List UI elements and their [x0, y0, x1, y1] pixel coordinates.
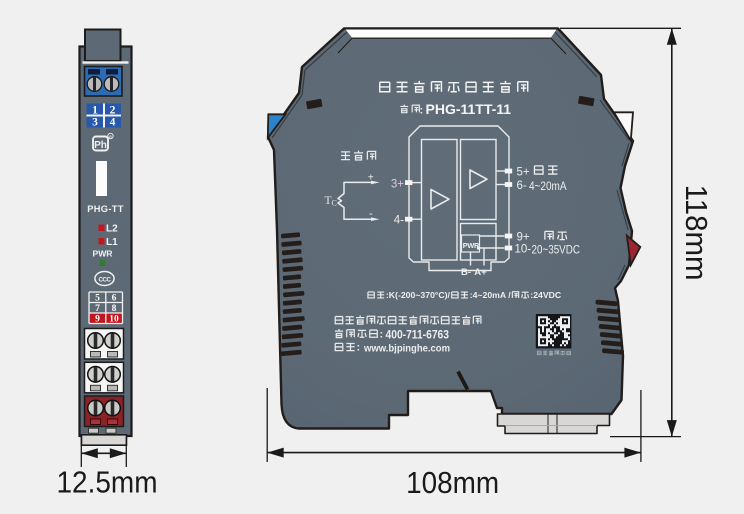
- svg-text:-: -: [369, 208, 373, 220]
- svg-text:9: 9: [95, 314, 100, 324]
- svg-text::: :: [357, 342, 361, 354]
- svg-text:2: 2: [110, 104, 116, 116]
- svg-text:PWR: PWR: [92, 249, 113, 259]
- svg-text:5: 5: [95, 293, 100, 303]
- svg-text:L2: L2: [106, 224, 118, 235]
- svg-text:3: 3: [92, 117, 98, 129]
- svg-text:PHG-11TT-11: PHG-11TT-11: [426, 101, 512, 117]
- svg-text:4~20mA: 4~20mA: [529, 179, 567, 193]
- svg-text:10-: 10-: [515, 244, 532, 256]
- svg-text:4: 4: [110, 117, 116, 129]
- svg-text:Ph: Ph: [94, 140, 107, 151]
- svg-text:118mm: 118mm: [679, 185, 714, 281]
- svg-text:8: 8: [112, 304, 117, 314]
- svg-text:A+: A+: [474, 267, 487, 278]
- svg-text::: :: [420, 105, 424, 117]
- svg-text:1: 1: [92, 104, 98, 116]
- svg-text:L1: L1: [106, 237, 118, 248]
- svg-text:+: +: [368, 172, 374, 183]
- svg-text:6-: 6-: [517, 180, 527, 192]
- svg-text:7: 7: [95, 304, 100, 314]
- svg-text:12.5mm: 12.5mm: [57, 465, 158, 500]
- svg-text:20~35VDC: 20~35VDC: [532, 243, 581, 257]
- svg-text::4~20mA /: :4~20mA /: [470, 290, 512, 300]
- svg-text:6: 6: [112, 293, 117, 303]
- svg-text:5+: 5+: [517, 167, 530, 179]
- svg-text:B-: B-: [461, 267, 471, 278]
- svg-text::: :: [380, 329, 384, 341]
- svg-text::K(-200~370°C)/: :K(-200~370°C)/: [386, 290, 451, 300]
- svg-text:www.bjpinghe.com: www.bjpinghe.com: [363, 342, 450, 354]
- svg-text:PHG-TT: PHG-TT: [87, 204, 123, 214]
- svg-text:108mm: 108mm: [406, 465, 499, 500]
- svg-text:9+: 9+: [517, 232, 530, 244]
- svg-text:CCC: CCC: [99, 276, 112, 283]
- svg-text:400-711-6763: 400-711-6763: [386, 330, 450, 342]
- svg-text:3+: 3+: [391, 179, 404, 191]
- svg-text:4-: 4-: [394, 215, 404, 227]
- svg-text:10: 10: [109, 314, 119, 324]
- svg-text::24VDC: :24VDC: [530, 290, 562, 300]
